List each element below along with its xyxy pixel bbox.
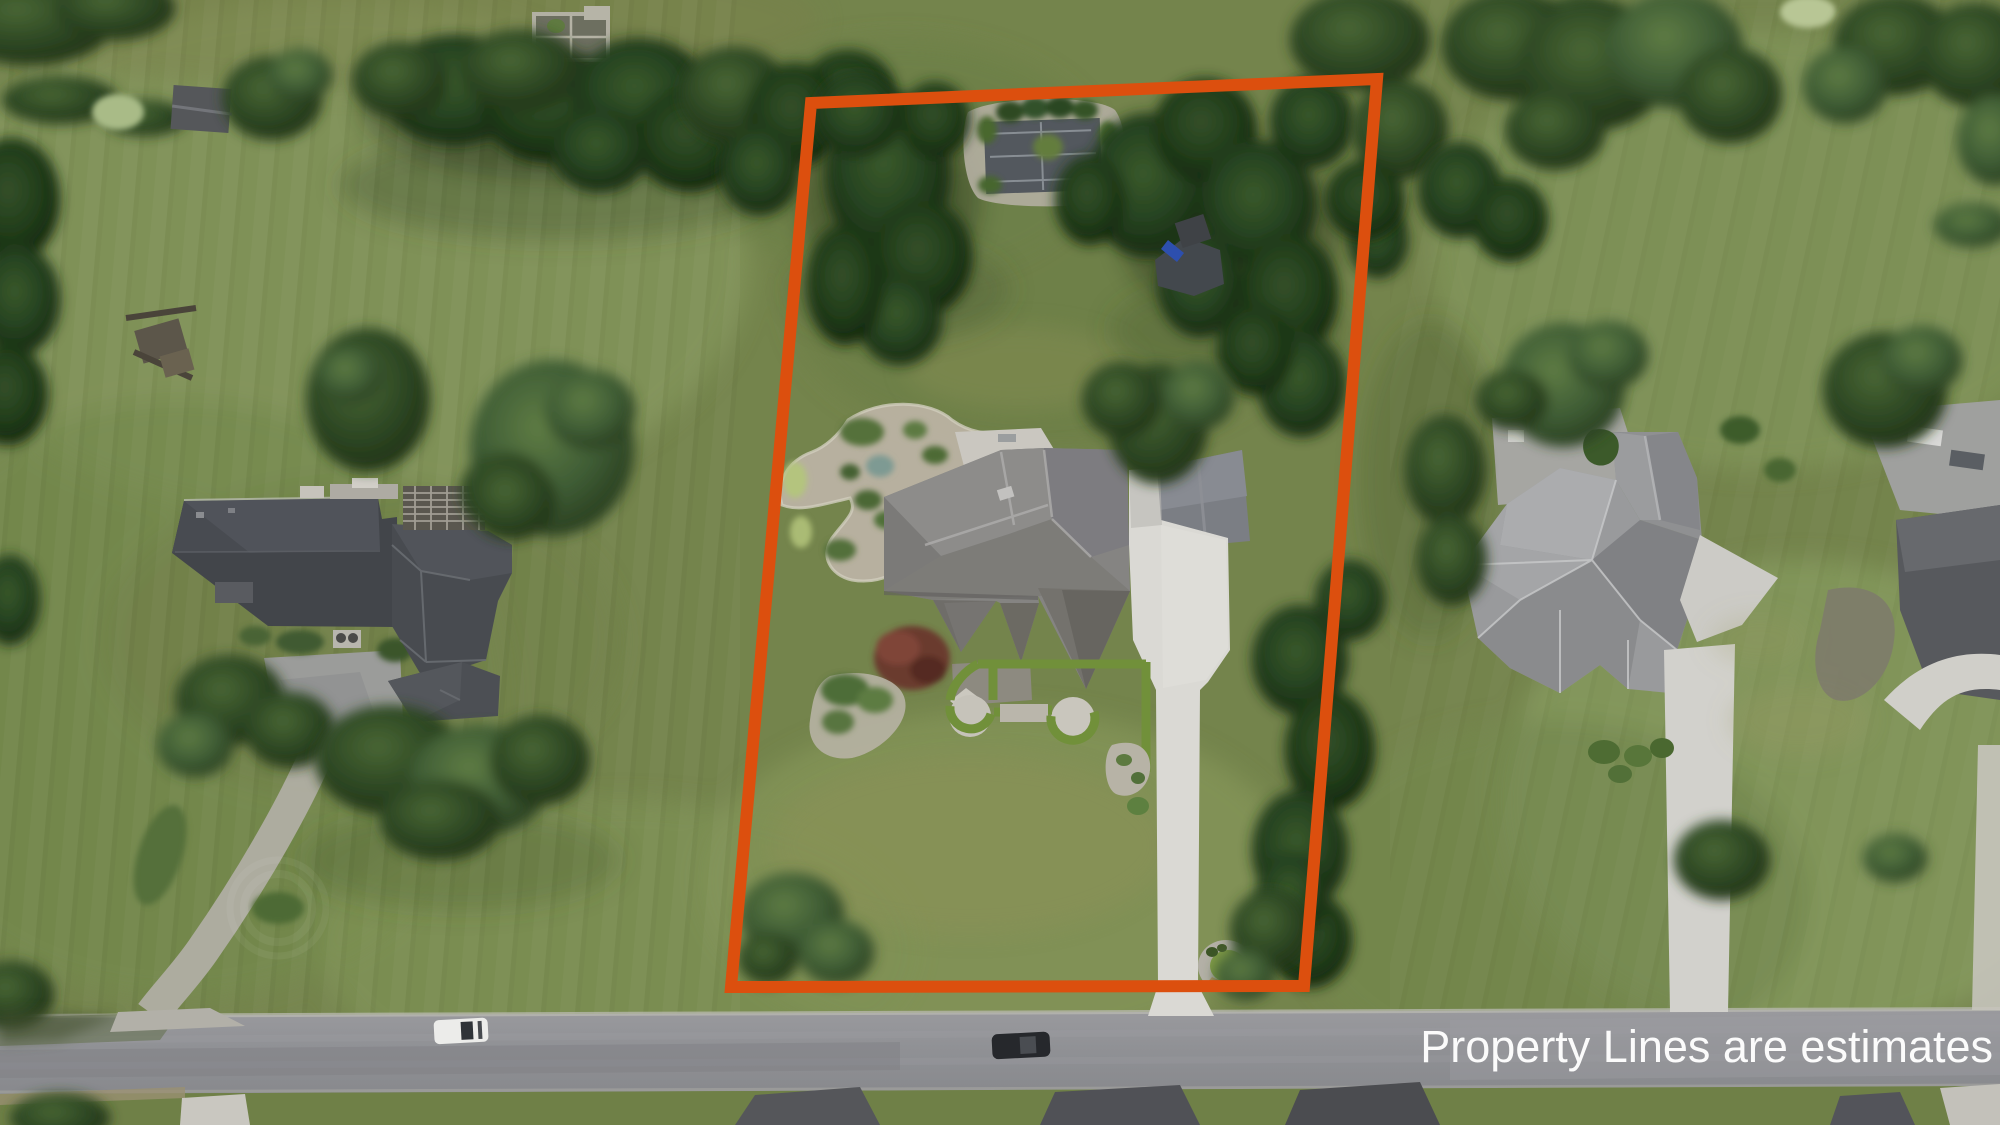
svg-text:Property Lines are estimates: Property Lines are estimates — [1420, 1021, 1993, 1072]
